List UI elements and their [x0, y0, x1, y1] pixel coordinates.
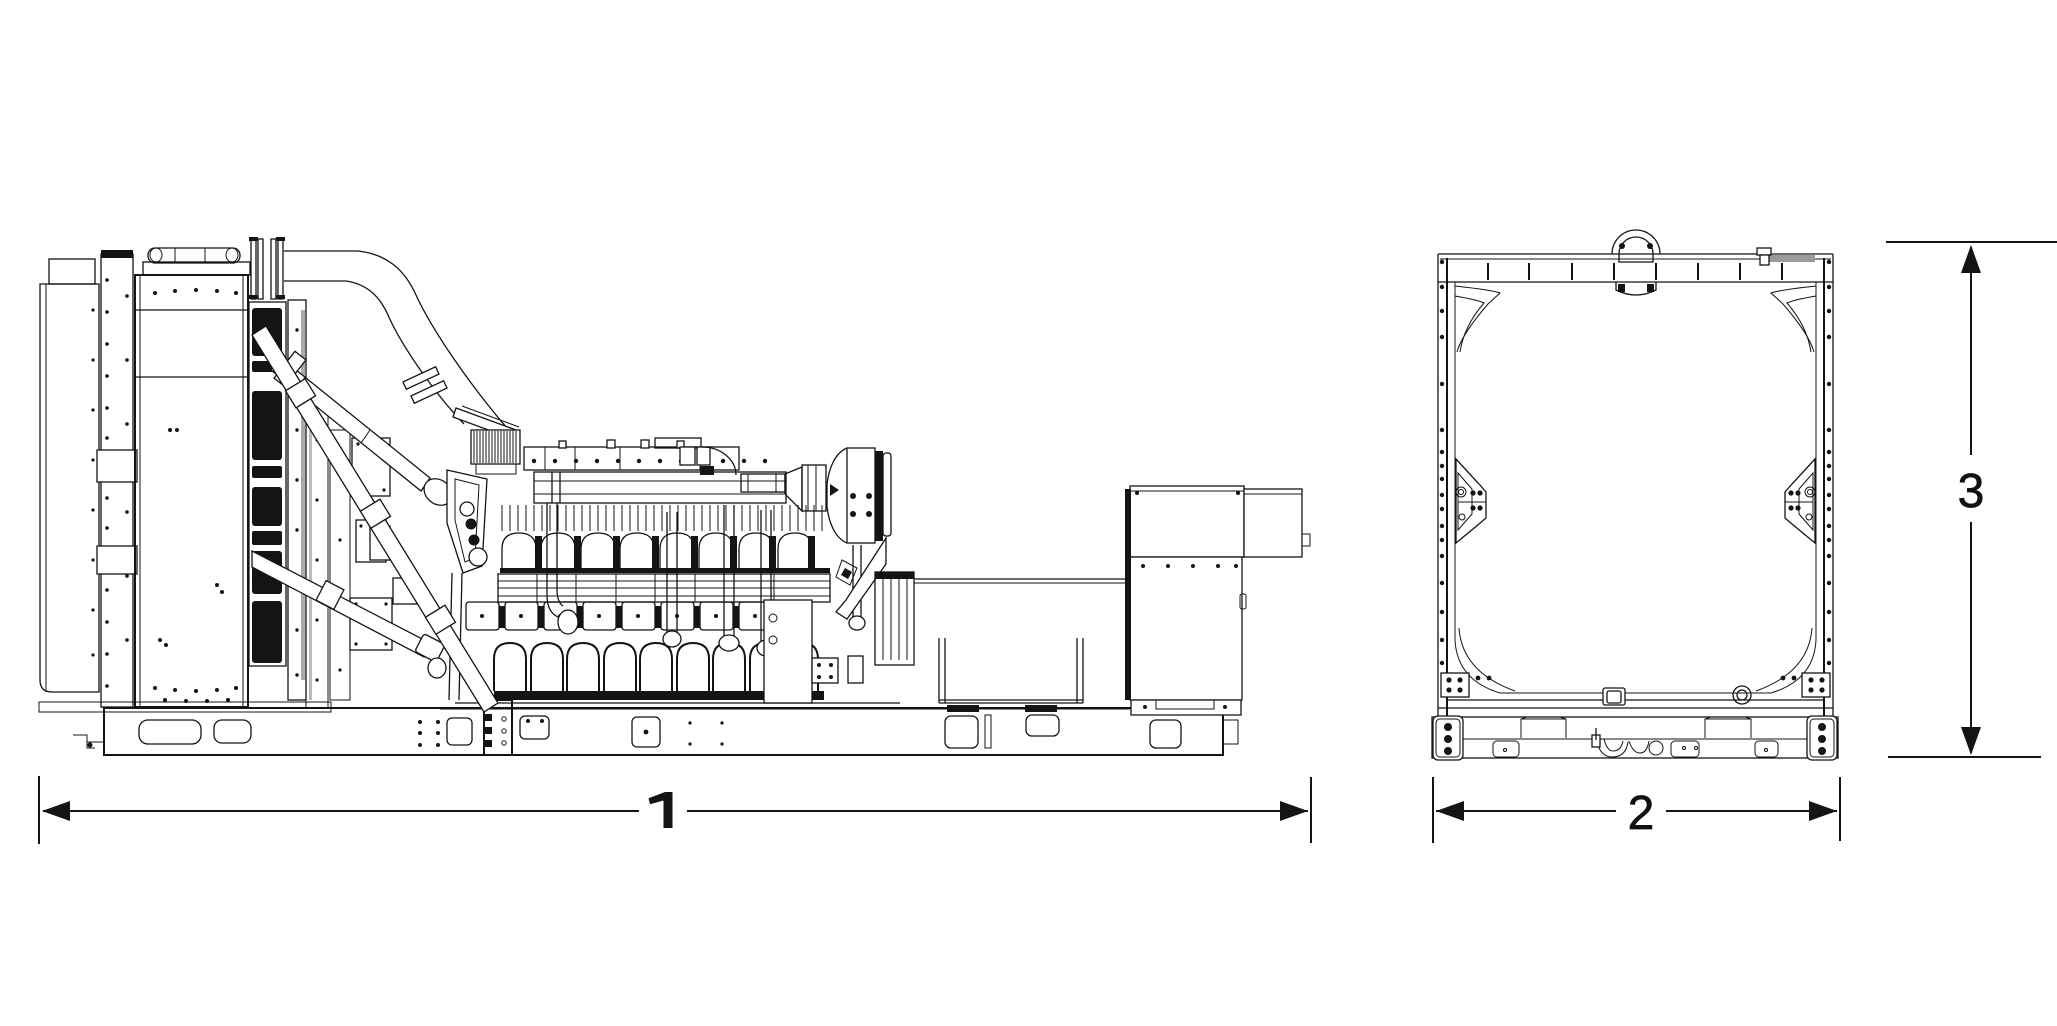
svg-text:2: 2	[1628, 787, 1655, 840]
svg-text:3: 3	[1958, 465, 1985, 518]
